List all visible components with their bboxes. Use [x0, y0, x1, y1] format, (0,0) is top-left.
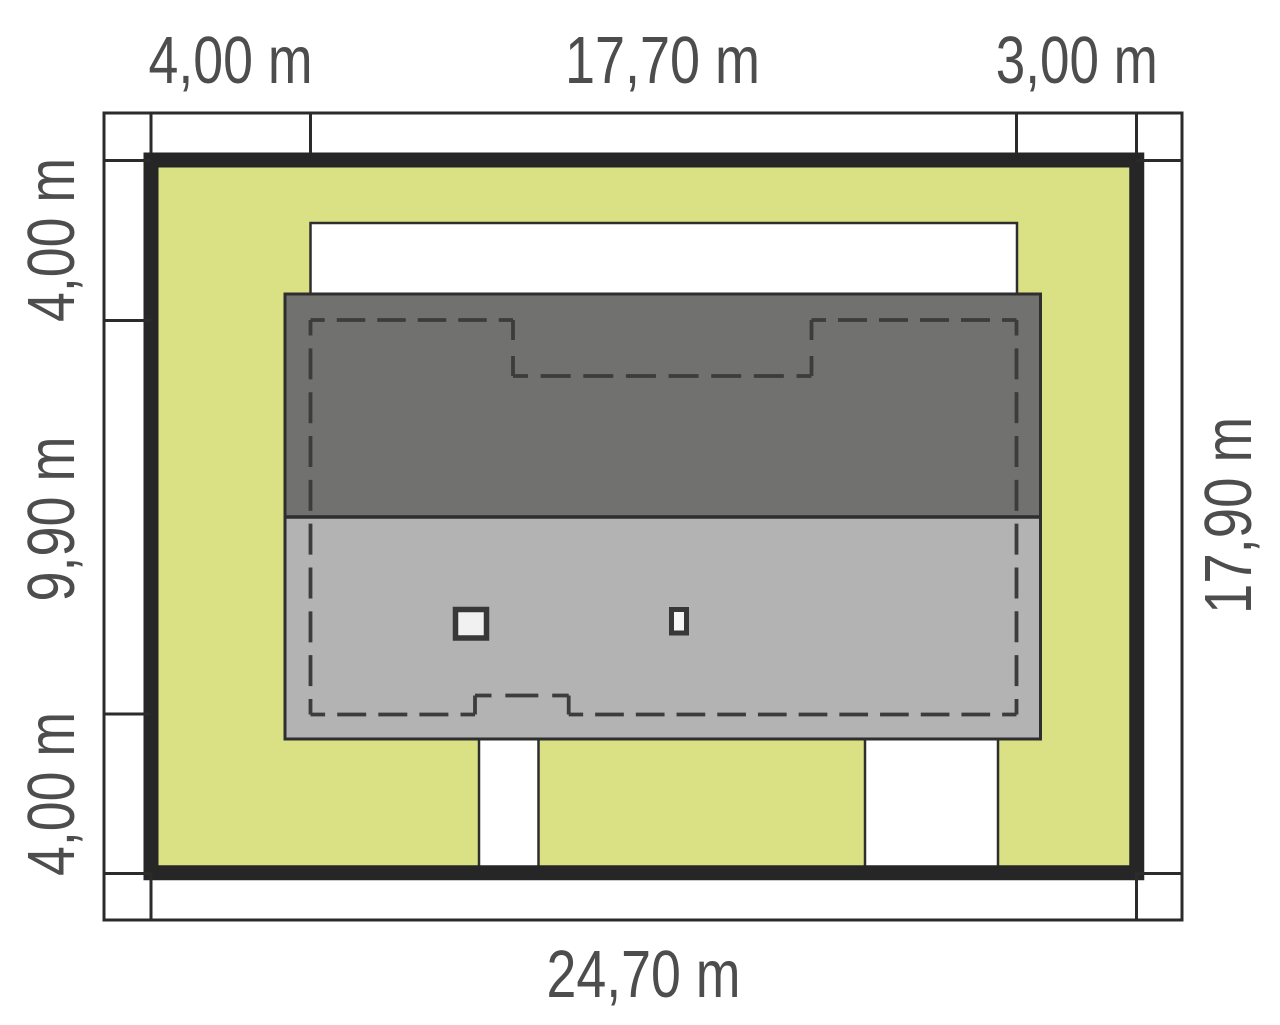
svg-text:4,00 m: 4,00 m [14, 712, 89, 876]
svg-text:17,70 m: 17,70 m [565, 23, 760, 98]
svg-text:3,00 m: 3,00 m [996, 23, 1158, 98]
svg-text:17,90 m: 17,90 m [1191, 417, 1266, 614]
svg-text:4,00 m: 4,00 m [14, 158, 89, 322]
svg-text:4,00 m: 4,00 m [149, 23, 313, 98]
svg-text:24,70 m: 24,70 m [547, 937, 741, 1012]
svg-text:9,90 m: 9,90 m [14, 437, 89, 602]
